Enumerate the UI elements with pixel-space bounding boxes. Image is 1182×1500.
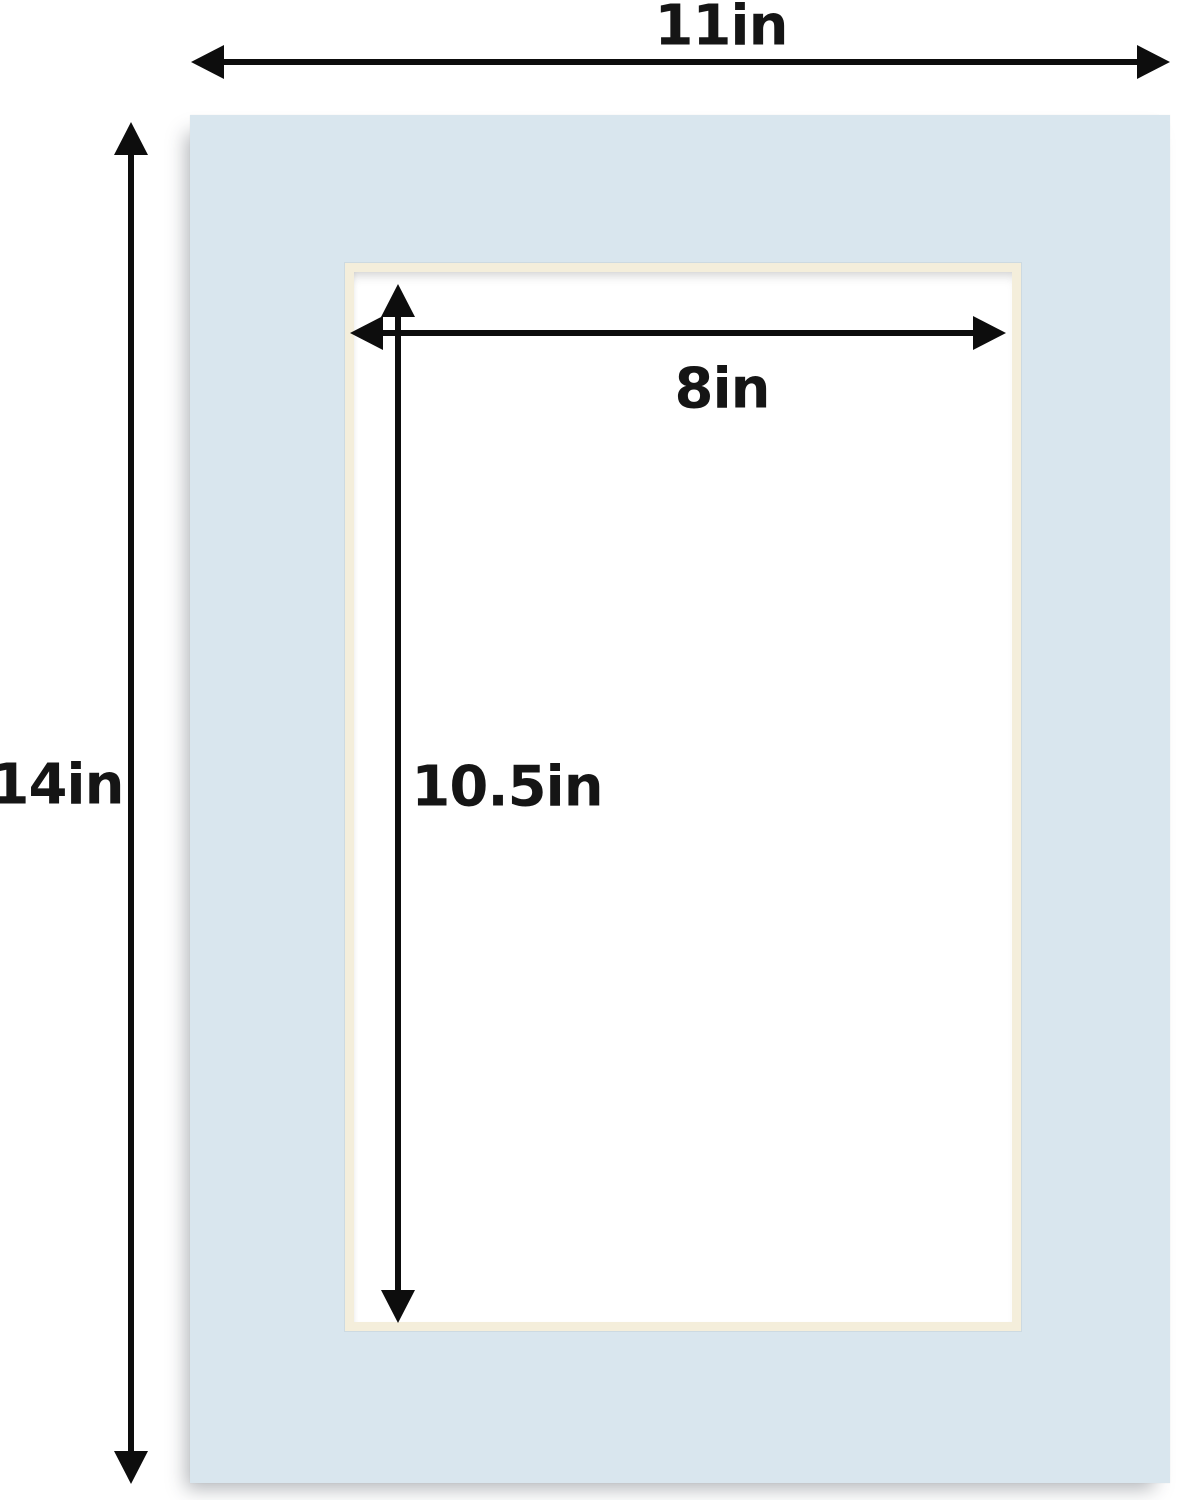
arrow-head-down-icon (114, 1451, 148, 1484)
arrow-head-left-icon (191, 45, 224, 79)
opening-height-label: 10.5in (411, 755, 602, 820)
mat-board (190, 115, 1170, 1483)
outer-height-label: 14in (0, 753, 124, 818)
arrow-head-up-icon (114, 122, 148, 155)
outer-width-label: 11in (655, 0, 788, 59)
arrow-head-right-icon (1137, 45, 1170, 79)
opening-width-label: 8in (674, 357, 769, 422)
mat-dimension-diagram: 11in 14in 8in 10.5in (0, 0, 1182, 1500)
